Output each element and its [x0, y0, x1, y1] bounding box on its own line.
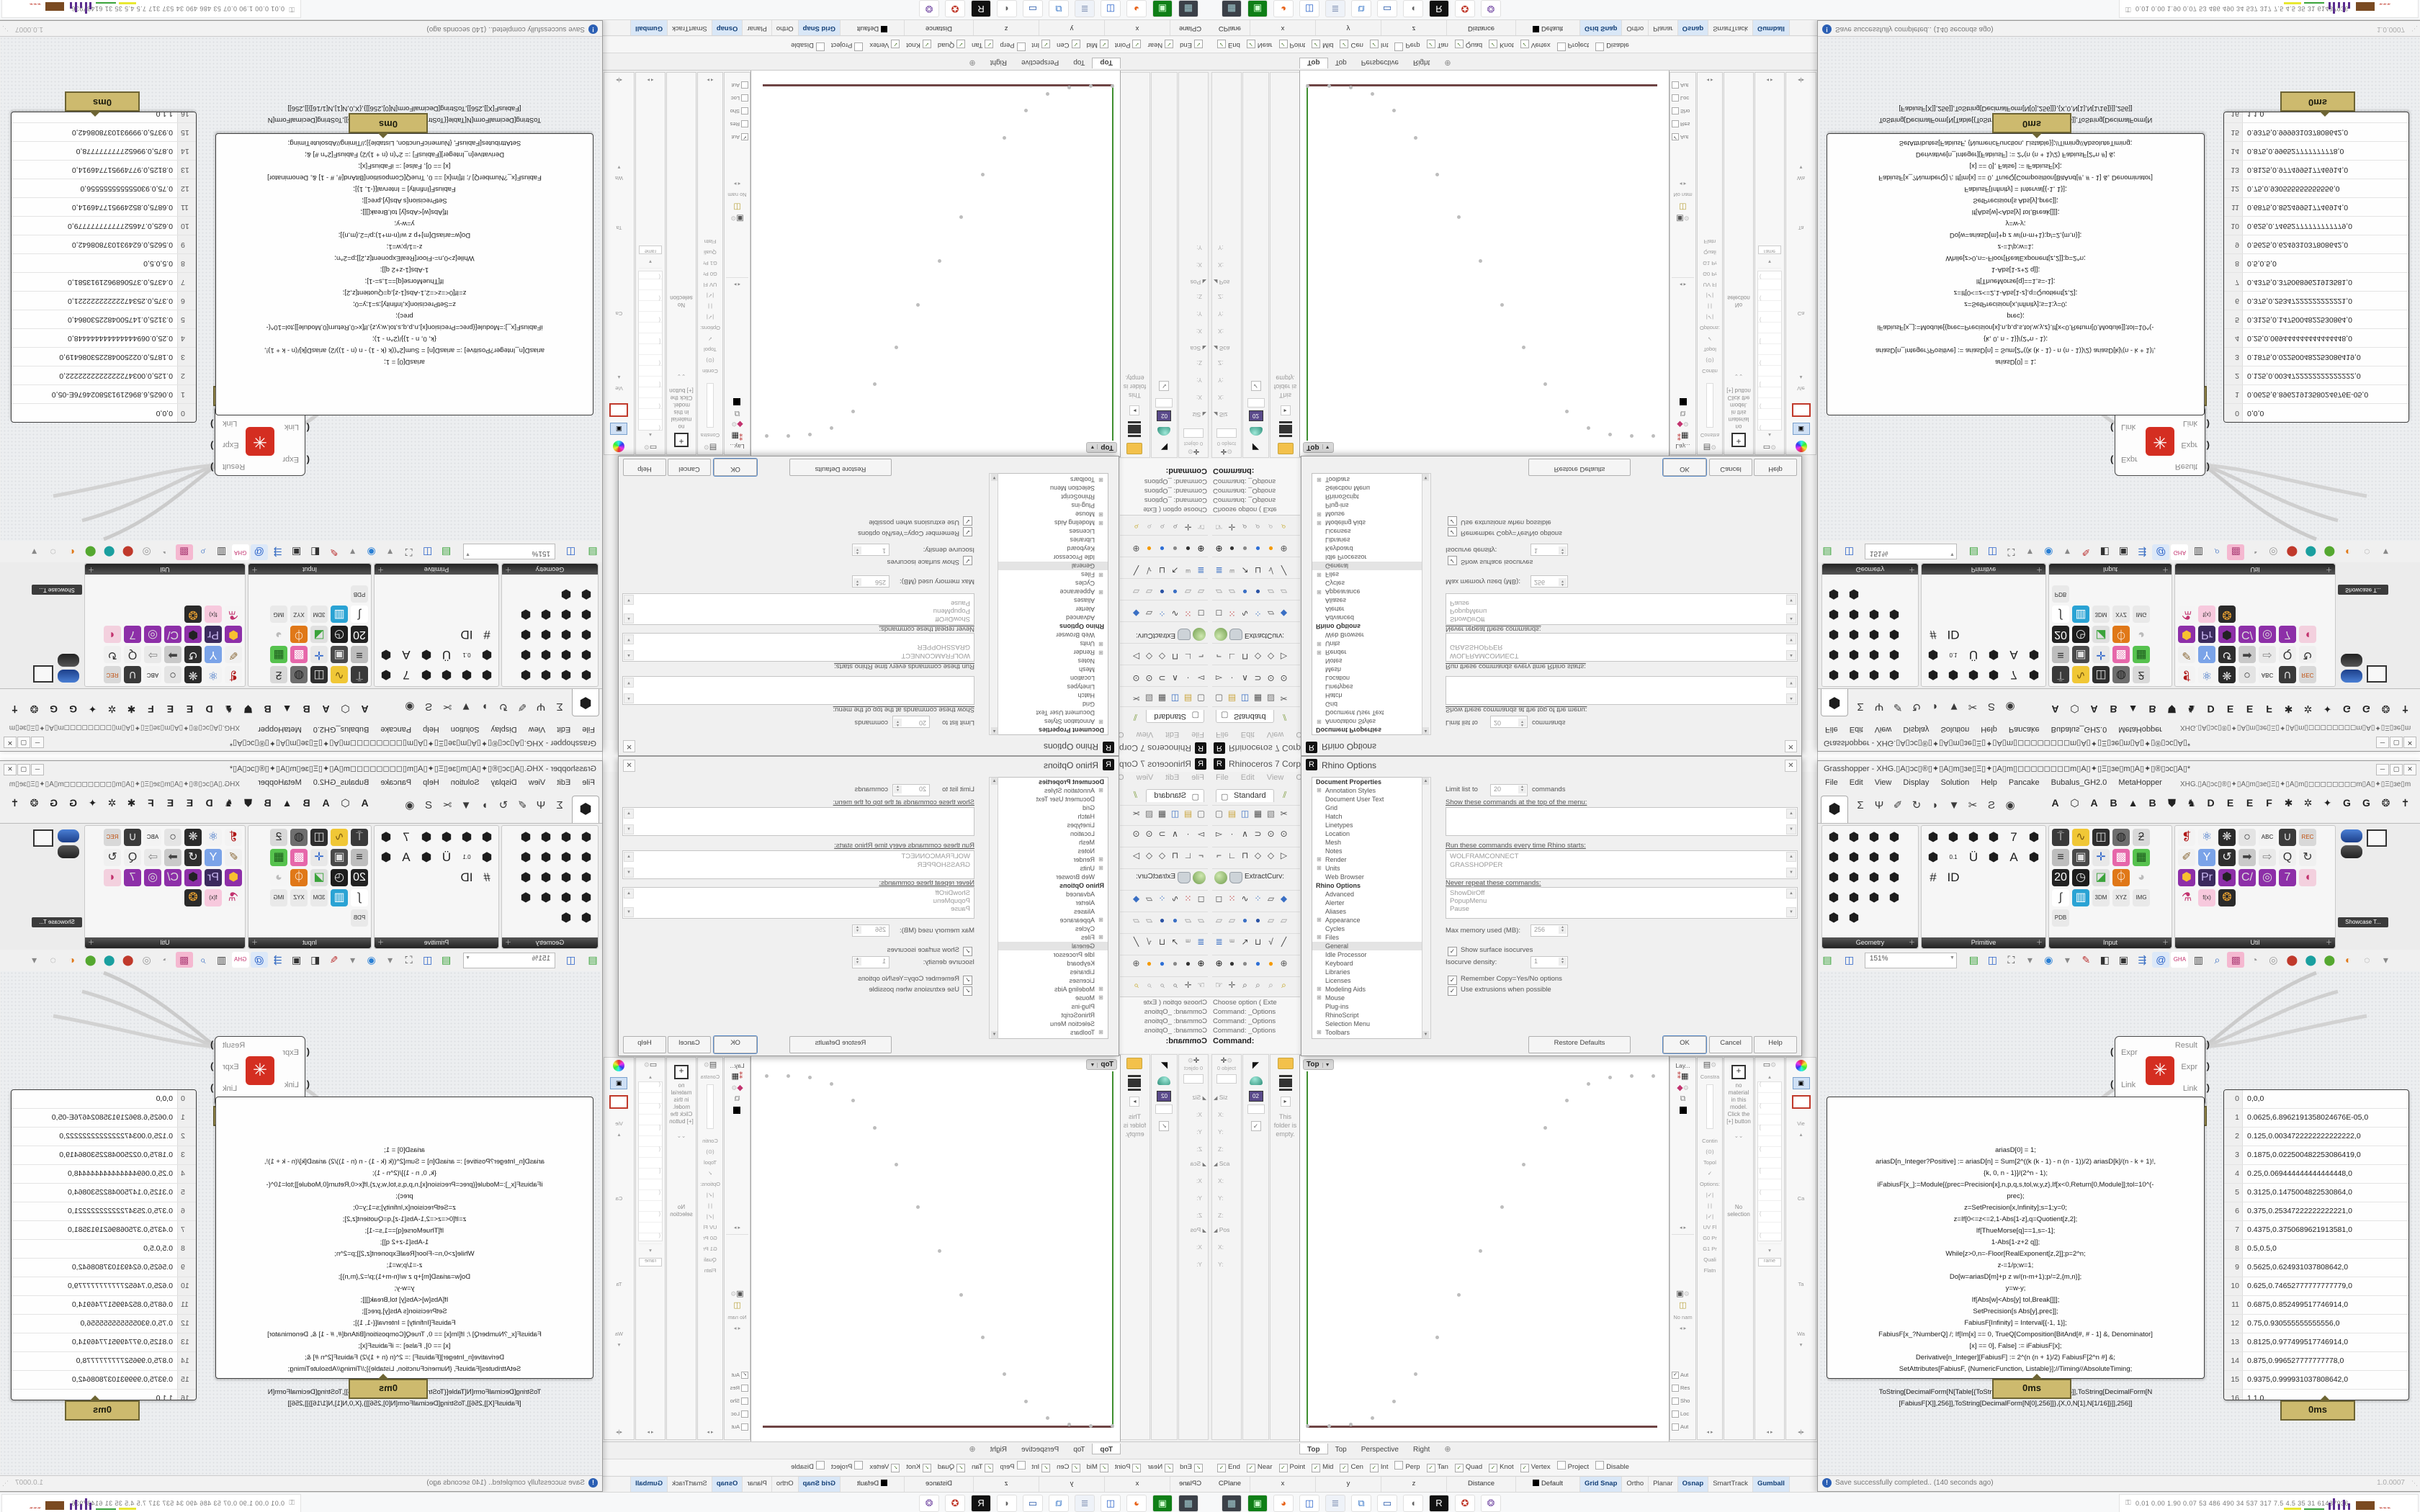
component-icon[interactable]: ⬢: [1886, 849, 1903, 866]
component-icon[interactable]: Pr: [2198, 869, 2215, 886]
gh-canvas[interactable]: ( Expr ( Link ✳ Result ) Expr ) Link ) 5…: [1, 37, 601, 541]
toolbar-icon[interactable]: ▢: [1195, 691, 1207, 706]
toolbar-icon[interactable]: √: [1143, 935, 1155, 949]
scroll-up-icon[interactable]: ▲: [624, 650, 634, 660]
tree-item[interactable]: ⊞Units: [998, 864, 1108, 873]
tree-item[interactable]: Linetypes: [1312, 683, 1422, 691]
radio-icon[interactable]: (⊙): [1698, 1144, 1722, 1155]
plugin-tab[interactable]: A: [2084, 703, 2104, 715]
plugin-tab[interactable]: F: [141, 797, 161, 809]
component-icon[interactable]: ◖: [2299, 626, 2316, 643]
category-tab-icon[interactable]: ◗: [475, 701, 494, 713]
toolbar-icon[interactable]: ◇: [1265, 848, 1277, 863]
chevrons-icon[interactable]: ⌄⌄: [667, 373, 696, 384]
category-tab-icon[interactable]: ✂: [438, 701, 457, 714]
component-icon[interactable]: ⬢: [377, 646, 395, 663]
component-icon[interactable]: Pr: [2198, 626, 2215, 643]
status-toggle[interactable]: Planar: [1649, 1477, 1677, 1493]
toolbar-icon[interactable]: ●: [1226, 541, 1238, 556]
osnap-checkbox[interactable]: ✓Mid: [1312, 1463, 1333, 1472]
component-icon[interactable]: ⬢: [2025, 646, 2043, 663]
minimize-icon[interactable]: ─: [2376, 764, 2389, 775]
tree-item[interactable]: Web Browser: [998, 873, 1108, 881]
plugin-tab[interactable]: E: [2240, 797, 2259, 809]
viewport-camera-icon[interactable]: ▣: [611, 423, 628, 435]
component-icon[interactable]: ◕: [2133, 626, 2150, 643]
gh-menu-item[interactable]: View: [529, 725, 546, 734]
component-icon[interactable]: #: [1924, 626, 1942, 643]
taskbar-app-icon[interactable]: ❂: [919, 1495, 939, 1512]
osnap-checkbox[interactable]: Disable: [791, 41, 825, 51]
component-icon[interactable]: ○: [2238, 829, 2256, 846]
toolbar-icon[interactable]: ⌕: [1265, 978, 1277, 992]
osnap-checkbox[interactable]: ✓Point: [1279, 1463, 1306, 1472]
gh-title-bar[interactable]: Grasshopper - XHG.▯A▯ɔc▯®▯✦▯A▯m▯ɜe▯Ξ▯✦▯A…: [1818, 735, 2420, 751]
ok-button[interactable]: OK: [714, 1036, 757, 1053]
option-checks[interactable]: |✓|: [1698, 314, 1722, 325]
tree-item[interactable]: Plug-ins: [1312, 1002, 1422, 1011]
category-tab-icon[interactable]: Ψ: [1870, 701, 1888, 713]
canvas-toolbar-icon[interactable]: ⬤: [2283, 544, 2300, 560]
tree-item[interactable]: Mesh: [998, 838, 1108, 847]
list-view-icon[interactable]: [1279, 1075, 1292, 1091]
wolfram-component[interactable]: ( Expr ( Link ✳ Result ) Expr ) Link ): [215, 406, 305, 476]
toolbar-icon[interactable]: ⌕: [1265, 520, 1277, 534]
plugin-tab[interactable]: ✲: [102, 703, 122, 715]
status-toggle[interactable]: SmartTrack: [1708, 1477, 1753, 1493]
viewport-section[interactable]: Vie: [604, 1109, 634, 1127]
canvas-toolbar-icon[interactable]: ◌: [45, 952, 62, 968]
category-tab-icon[interactable]: ◉: [2001, 798, 2020, 811]
resize-grip[interactable]: ⋱: [2411, 1480, 2418, 1488]
scroll-down-icon[interactable]: ▼: [624, 824, 634, 834]
taskbar-app-icon[interactable]: ✪: [945, 0, 965, 17]
osnap-checkbox[interactable]: Perp: [1394, 41, 1420, 51]
zoom-combobox[interactable]: 151%▼: [463, 953, 555, 968]
toolbar-icon[interactable]: ∿: [1169, 606, 1181, 621]
component-icon[interactable]: ⬢: [1886, 889, 1903, 906]
new-viewport-button[interactable]: ⊕: [1437, 58, 1458, 70]
viewport-title[interactable]: Top▼: [1303, 442, 1334, 453]
plugin-tab[interactable]: ❂: [24, 797, 44, 809]
output-port[interactable]: ): [2207, 441, 2210, 451]
taskbar-app-icon[interactable]: ◖: [1403, 1495, 1423, 1512]
toolbar-icon[interactable]: ᵚ: [1182, 935, 1194, 949]
component-icon[interactable]: REC: [2299, 829, 2316, 846]
component-icon[interactable]: ↻: [104, 849, 121, 866]
toolbar-icon[interactable]: ▷: [1130, 649, 1142, 664]
toolbar-icon[interactable]: ⌐: [1213, 848, 1225, 863]
gh-canvas[interactable]: ( Expr ( Link ✳ Result ) Expr ) Link ) 5…: [1819, 37, 2419, 541]
canvas-toolbar-icon[interactable]: ▾: [2058, 952, 2076, 968]
plugin-tab[interactable]: F: [2259, 703, 2279, 715]
tab-params[interactable]: ⬢: [572, 688, 599, 716]
tree-item[interactable]: ⊞Mouse: [998, 510, 1108, 518]
plugin-tab[interactable]: ⛊: [238, 703, 258, 715]
panel-nav-arrows[interactable]: ◂ ▸: [636, 1429, 665, 1435]
component-icon[interactable]: ⬢: [1924, 646, 1942, 663]
learn-field[interactable]: [1156, 1104, 1173, 1114]
component-icon[interactable]: ⬢: [478, 849, 496, 866]
component-icon[interactable]: ○: [2238, 666, 2256, 683]
osnap-checkbox[interactable]: ✓Cen: [1057, 40, 1080, 49]
show-commands-listbox[interactable]: ▲▼: [622, 807, 974, 836]
component-icon[interactable]: ◍: [2112, 829, 2130, 846]
maximize-icon[interactable]: ▢: [2390, 764, 2403, 775]
component-icon[interactable]: ⬢: [1825, 606, 1842, 623]
component-icon[interactable]: ⍑: [351, 666, 368, 683]
tree-item[interactable]: ⊞Toolbars: [1312, 1028, 1422, 1037]
taskbar-app-icon[interactable]: ◫: [1299, 1495, 1319, 1512]
osnap-checkbox[interactable]: Project: [1557, 1461, 1590, 1471]
close-icon[interactable]: ✕: [2403, 737, 2416, 748]
expand-button[interactable]: ▸: [1281, 1097, 1291, 1107]
wallpaper-section[interactable]: Wa: [604, 1287, 634, 1337]
never-repeat-command[interactable]: Pause: [1450, 905, 1797, 913]
component-icon[interactable]: ⬢: [418, 849, 435, 866]
toolbar-icon[interactable]: ⌕: [1169, 978, 1181, 992]
toolbar-icon[interactable]: ▱: [1195, 913, 1207, 927]
taskbar-app-icon[interactable]: ◫: [1101, 0, 1121, 17]
component-icon[interactable]: ⬢: [537, 889, 555, 906]
toolbar-icon[interactable]: ▤: [1226, 806, 1238, 821]
toolbar-icon[interactable]: ●: [1252, 541, 1264, 556]
component-icon[interactable]: ⬢: [478, 646, 496, 663]
command-prompt[interactable]: Command:: [1120, 1035, 1210, 1045]
component-icon[interactable]: ◍: [290, 829, 308, 846]
layer-color-swatch[interactable]: [1680, 398, 1687, 405]
status-toggle[interactable]: Grid Snap: [1580, 19, 1622, 35]
viewport-top[interactable]: Top▼: [750, 1055, 1121, 1443]
component-icon[interactable]: Q: [124, 849, 141, 866]
canvas-toolbar-icon[interactable]: ▾: [26, 952, 43, 968]
monitor-icon[interactable]: ▭⚙: [1755, 1058, 1784, 1069]
component-icon[interactable]: Y: [2198, 849, 2215, 866]
gh-menu-item[interactable]: Pancake: [380, 778, 411, 787]
status-toggle[interactable]: Osnap: [1678, 19, 1709, 35]
component-icon[interactable]: ❡: [2178, 829, 2195, 846]
plugin-tab[interactable]: B: [258, 703, 277, 715]
folder-icon[interactable]: [1127, 1058, 1143, 1069]
osnap-checkbox[interactable]: ✓Vertex: [1520, 1463, 1551, 1472]
group-caption[interactable]: Primitive＋: [1922, 937, 2045, 948]
taskbar-app-icon[interactable]: ▦: [1222, 1495, 1242, 1512]
tree-item[interactable]: Location: [1312, 674, 1422, 683]
tree-item[interactable]: Advanced: [1312, 890, 1422, 899]
osnap-checkbox[interactable]: ✓Int: [1032, 40, 1051, 49]
isocurves-checkbox[interactable]: ✓Show surface isocurves: [887, 556, 972, 566]
component-icon[interactable]: ⚗: [2178, 889, 2195, 906]
component-icon[interactable]: ⬢: [537, 646, 555, 663]
component-icon[interactable]: ∿: [2072, 829, 2089, 846]
status-toggle[interactable]: Gumball: [630, 1477, 667, 1493]
close-icon[interactable]: ✕: [1785, 760, 1797, 772]
canvas-toolbar-icon[interactable]: @: [2152, 952, 2169, 968]
scroll-down-icon[interactable]: ▼: [624, 595, 634, 605]
component-icon[interactable]: ⬢: [1865, 889, 1883, 906]
billboard-icon[interactable]: [2367, 829, 2387, 847]
canvas-toolbar-icon[interactable]: ◫: [1984, 952, 2001, 968]
toolbar-icon[interactable]: √: [1265, 563, 1277, 577]
viewport-tab[interactable]: Right: [983, 58, 1014, 68]
toolbar-icon[interactable]: ⊓: [1169, 649, 1181, 664]
toolbar-icon[interactable]: ◇: [1156, 649, 1168, 664]
ok-button[interactable]: OK: [1663, 459, 1706, 476]
component-icon[interactable]: ⬢: [1845, 585, 1863, 603]
component-icon[interactable]: ❂: [2218, 606, 2236, 623]
component-icon[interactable]: ⬢: [377, 829, 395, 846]
toolbar-icon[interactable]: ▤: [1226, 691, 1238, 706]
wallpaper-section[interactable]: Wa: [1786, 175, 1816, 225]
gh-menu-item[interactable]: Bubalus_GH2.0: [2051, 778, 2107, 787]
component-icon[interactable]: ⬢: [1865, 606, 1883, 623]
component-icon[interactable]: ⬢: [2178, 626, 2195, 643]
toolbar-icon[interactable]: ∿: [1239, 891, 1251, 906]
osnap-checkbox[interactable]: ✓Tan: [1427, 40, 1448, 49]
component-icon[interactable]: ID: [1945, 626, 1962, 643]
panel-nav-arrows[interactable]: ◂ ▸: [725, 181, 750, 192]
component-icon[interactable]: 7: [2005, 829, 2022, 846]
component-icon[interactable]: ⬢: [578, 829, 595, 846]
scroll-up-icon[interactable]: ▴: [1755, 1069, 1784, 1080]
osnap-checkbox[interactable]: ✓Knot: [1489, 1463, 1514, 1472]
plugin-tab[interactable]: E: [180, 703, 200, 715]
canvas-toolbar-icon[interactable]: ▾: [382, 544, 399, 560]
category-tab-icon[interactable]: ▼: [1945, 799, 1963, 811]
boxedit-panel[interactable]: ✛⚙ 0 object ◢ Siz X: Y: Z: ◢ Sca X: Y: Z…: [1211, 1054, 1242, 1440]
component-icon[interactable]: ⬢: [578, 646, 595, 663]
toolbar-tab-partial-icon[interactable]: ⫽: [1283, 711, 1286, 722]
option-checks[interactable]: |✓|: [1698, 292, 1722, 303]
component-icon[interactable]: PDB: [351, 585, 368, 603]
toolbar-icon[interactable]: ◫: [1169, 806, 1181, 821]
component-icon[interactable]: 0.1: [1945, 849, 1962, 866]
viewport-camera-icon[interactable]: ▣: [611, 1077, 628, 1089]
tree-item[interactable]: Cycles: [1312, 924, 1422, 933]
osnap-checkbox[interactable]: Disable: [1595, 41, 1629, 51]
taskbar-app-icon[interactable]: ◕: [1126, 1495, 1147, 1512]
plugin-tab[interactable]: G: [44, 703, 63, 715]
component-icon[interactable]: Y: [2198, 646, 2215, 663]
group-caption[interactable]: Input＋: [248, 937, 371, 948]
never-repeat-command[interactable]: Pause: [623, 599, 970, 607]
ok-button[interactable]: OK: [1663, 1036, 1706, 1053]
component-icon[interactable]: ◪: [2092, 626, 2110, 643]
category-tab-icon[interactable]: Ƨ: [1982, 701, 2001, 713]
canvas-toolbar-icon[interactable]: ▩: [2227, 952, 2244, 968]
component-icon[interactable]: Ü: [438, 849, 455, 866]
status-toggle[interactable]: Osnap: [712, 19, 743, 35]
osnap-checkbox[interactable]: ✓Quad: [938, 40, 965, 49]
osnap-checkbox[interactable]: ✓Tan: [972, 1463, 993, 1472]
component-icon[interactable]: ∪: [2279, 666, 2296, 683]
category-tab-icon[interactable]: Σ: [550, 799, 569, 811]
output-port[interactable]: ): [210, 419, 213, 430]
canvas-toolbar-icon[interactable]: ▣: [288, 544, 305, 560]
toolbar-icon[interactable]: ∧: [1169, 827, 1181, 841]
toolbar-icon[interactable]: ●: [1252, 585, 1264, 599]
rhino-menu-item[interactable]: View: [1267, 773, 1284, 782]
canvas-toolbar-icon[interactable]: ⬤: [2302, 952, 2319, 968]
panel-nav-arrows[interactable]: ◂ ▸: [725, 1225, 750, 1230]
osnap-checkbox[interactable]: ✓Near: [1148, 40, 1174, 49]
component-icon[interactable]: ⬢: [458, 829, 475, 846]
status-toggle[interactable]: Planar: [1649, 19, 1677, 35]
rhino-menu-item[interactable]: View: [1137, 773, 1154, 782]
canvas-toolbar-icon[interactable]: ▣: [2115, 952, 2132, 968]
input-port[interactable]: (: [307, 1046, 310, 1057]
osnap-checkbox[interactable]: ✓Int: [1370, 1463, 1389, 1472]
viewport-tab[interactable]: Right: [1406, 58, 1437, 68]
scroll-up-icon[interactable]: ▲: [1786, 613, 1796, 624]
layer-cell[interactable]: Default: [1516, 19, 1580, 35]
component-icon[interactable]: PDB: [2052, 585, 2069, 603]
tree-item[interactable]: General: [1312, 942, 1422, 950]
toolbar-icon[interactable]: ▧: [1265, 691, 1277, 706]
plugin-tab[interactable]: ⬡: [2065, 703, 2084, 715]
view-option-checkbox[interactable]: Res: [730, 1382, 750, 1391]
toolbar-icon[interactable]: ⁘: [1252, 606, 1264, 621]
isocurves-checkbox[interactable]: ✓Show surface isocurves: [887, 946, 972, 956]
viewport-tab[interactable]: Top: [1092, 58, 1121, 68]
osnap-checkbox[interactable]: ✓Cen: [1340, 1463, 1363, 1472]
tree-item[interactable]: ⊞Render: [998, 855, 1108, 864]
toolbar-icon[interactable]: ≣: [1213, 935, 1225, 949]
component-icon[interactable]: ✐: [225, 849, 242, 866]
tree-item[interactable]: Libraries: [998, 536, 1108, 544]
plugin-tab[interactable]: G: [2337, 703, 2357, 715]
view-option-checkbox[interactable]: ✓Aut: [1670, 1369, 1688, 1378]
toolbar-icon[interactable]: ●: [1252, 956, 1264, 971]
component-icon[interactable]: ⬢: [1845, 829, 1863, 846]
group-caption[interactable]: Util＋: [2175, 564, 2335, 575]
taskbar-app-icon[interactable]: ▭: [1023, 0, 1043, 17]
category-tab-icon[interactable]: Ƨ: [419, 799, 438, 811]
startup-command[interactable]: WOLFRAMCONNECT: [1450, 651, 1797, 660]
component-icon[interactable]: ❡: [2178, 666, 2195, 683]
display-mode-icon[interactable]: [1792, 403, 1811, 417]
component-icon[interactable]: ◍: [2112, 666, 2130, 683]
status-toggle[interactable]: Ortho: [771, 1477, 798, 1493]
component-icon[interactable]: ⬢: [1924, 666, 1942, 683]
never-repeat-listbox[interactable]: ShowDirOffPopupMenuPause▲▼: [1446, 593, 1798, 625]
group-caption[interactable]: Primitive＋: [375, 564, 498, 575]
toolbar-icon[interactable]: ▧: [1265, 806, 1277, 821]
canvas-toolbar-icon[interactable]: ◔: [157, 544, 174, 560]
toolbar-tab-partial-icon[interactable]: ⫽: [1134, 790, 1137, 801]
plugin-tab[interactable]: ✝: [2396, 797, 2415, 809]
component-icon[interactable]: ✛: [310, 646, 328, 663]
component-icon[interactable]: ≡: [351, 646, 368, 663]
canvas-toolbar-icon[interactable]: GHA: [2171, 544, 2188, 560]
gh-menu-item[interactable]: File: [582, 778, 595, 787]
toolbar-icon[interactable]: ●: [1156, 585, 1168, 599]
taskbar-app-icon[interactable]: ▣: [1152, 0, 1173, 17]
toolbar-icon[interactable]: ◇: [1156, 848, 1168, 863]
tree-item[interactable]: ⊞Annotation Styles: [1312, 717, 1422, 726]
toolbar-icon[interactable]: ▱: [1278, 585, 1290, 599]
tree-item[interactable]: ⊞Render: [1312, 648, 1422, 657]
tree-item[interactable]: ⊞Appearance: [998, 588, 1108, 596]
group-caption[interactable]: Input＋: [2049, 564, 2172, 575]
dome-icon[interactable]: [1158, 1076, 1171, 1085]
component-icon[interactable]: ⚛: [205, 666, 222, 683]
tree-item[interactable]: Mesh: [1312, 665, 1422, 674]
component-icon[interactable]: ABC: [2259, 829, 2276, 846]
category-tab-icon[interactable]: ✐: [513, 798, 532, 811]
plugin-tab[interactable]: ⬡: [2065, 797, 2084, 809]
view-option-checkbox[interactable]: Sho: [730, 108, 750, 117]
component-icon[interactable]: ID: [458, 626, 475, 643]
plugin-tab[interactable]: G: [2357, 703, 2376, 715]
display-mode-icon[interactable]: [610, 1095, 629, 1109]
toolbar-icon[interactable]: ☞: [1195, 978, 1207, 992]
component-icon[interactable]: ▣: [331, 646, 348, 663]
goggles-dark-icon[interactable]: [58, 845, 79, 858]
osnap-checkbox[interactable]: ✓Near: [1247, 40, 1273, 49]
documents-icon[interactable]: ⧉: [1670, 408, 1695, 420]
component-icon[interactable]: ⬢: [1845, 666, 1863, 683]
component-icon[interactable]: IMG: [270, 606, 287, 623]
radio-icon[interactable]: (⊙): [1698, 357, 1722, 368]
add-material-button[interactable]: +: [674, 433, 689, 447]
expand-button[interactable]: ▸: [1281, 405, 1291, 415]
tree-item[interactable]: Alerter: [998, 605, 1108, 613]
canvas-toolbar-icon[interactable]: ⇶: [2133, 952, 2151, 968]
remember-copy-checkbox[interactable]: ✓Remember Copy=Yes/No options: [858, 527, 972, 537]
folder-icon[interactable]: [1278, 1058, 1294, 1069]
plugin-tab[interactable]: ⛊: [238, 797, 258, 809]
component-icon[interactable]: ▦: [2133, 646, 2150, 663]
component-icon[interactable]: ◕: [2133, 869, 2150, 886]
component-icon[interactable]: A: [398, 849, 415, 866]
expand-button[interactable]: ▸: [1130, 405, 1140, 415]
component-icon[interactable]: 3DM: [310, 889, 328, 906]
panel-nav-arrows[interactable]: ◂ ▸: [1670, 181, 1695, 192]
component-icon[interactable]: ⇨: [2259, 849, 2276, 866]
canvas-toolbar-icon[interactable]: ◫: [1984, 544, 2001, 560]
tree-item[interactable]: ⊞Appearance: [1312, 916, 1422, 924]
code-panel[interactable]: ariasD[0] = 1;ariasD[n_Integer?Positive]…: [1827, 133, 2205, 415]
component-icon[interactable]: ⬢: [578, 889, 595, 906]
never-repeat-command[interactable]: ShowDirOff: [1450, 615, 1797, 623]
gh-menu-item[interactable]: File: [1825, 725, 1838, 734]
rhino-menu-item[interactable]: Edit: [1165, 773, 1179, 782]
plugin-tab[interactable]: E: [2220, 703, 2240, 715]
component-icon[interactable]: ⬢: [1825, 666, 1842, 683]
component-icon[interactable]: ◫: [2092, 666, 2110, 683]
component-icon[interactable]: ∪: [124, 829, 141, 846]
component-icon[interactable]: ID: [1945, 869, 1962, 886]
add-material-button[interactable]: +: [1731, 433, 1746, 447]
ok-button[interactable]: OK: [714, 459, 757, 476]
component-icon[interactable]: ↻: [2299, 849, 2316, 866]
component-icon[interactable]: f(x): [2198, 606, 2215, 623]
tree-item[interactable]: ⊞Annotation Styles: [998, 786, 1108, 795]
toolbar-icon[interactable]: ▢: [1213, 691, 1225, 706]
osnap-checkbox[interactable]: Disable: [791, 1461, 825, 1471]
osnap-checkbox[interactable]: ✓Quad: [1455, 40, 1482, 49]
toolbar-icon[interactable]: ●: [1265, 541, 1277, 556]
component-icon[interactable]: REC: [2299, 666, 2316, 683]
category-tab-icon[interactable]: ✂: [1963, 701, 1982, 714]
plugin-tab[interactable]: ♞: [2182, 797, 2201, 809]
zoom-combobox[interactable]: 151%▼: [463, 544, 555, 559]
toolbar-icon[interactable]: ◇: [1143, 848, 1155, 863]
gh-menu-item[interactable]: Solution: [1940, 778, 1969, 787]
group-caption[interactable]: Input＋: [2049, 937, 2172, 948]
viewport-tab[interactable]: Right: [983, 1444, 1014, 1454]
